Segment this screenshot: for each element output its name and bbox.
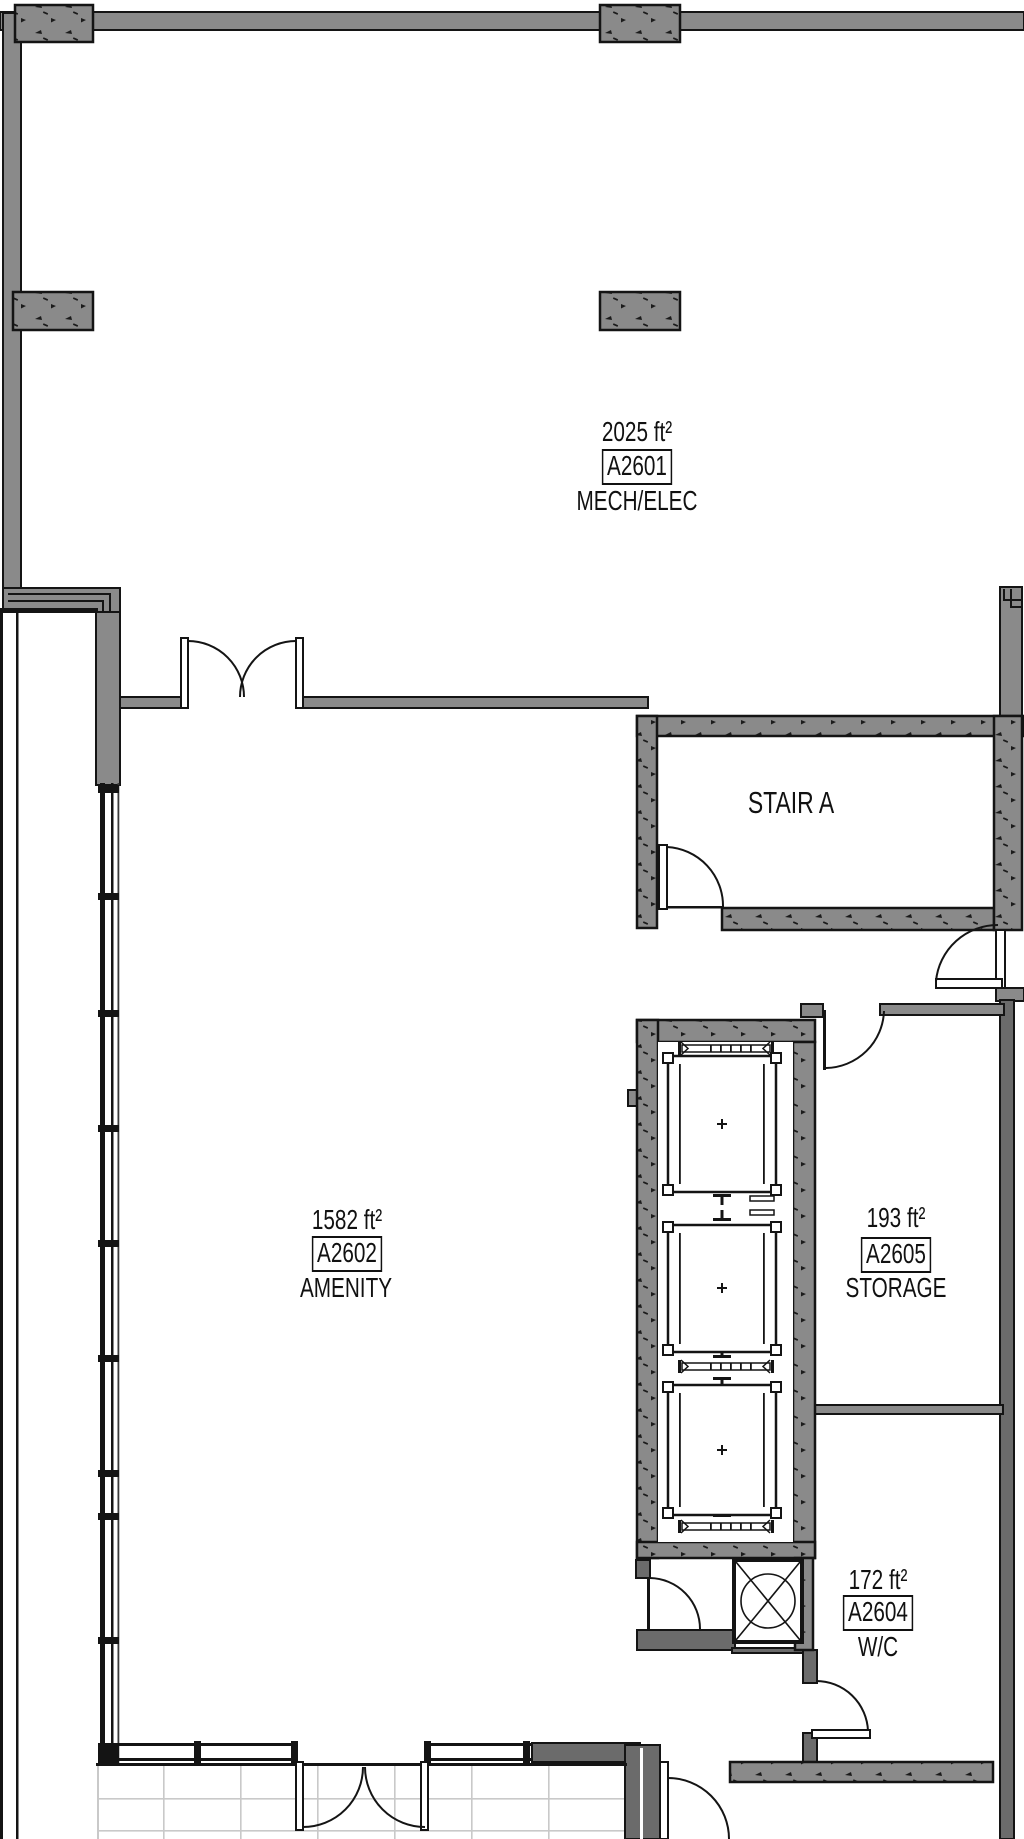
- stair-name-label: STAIR A: [748, 788, 834, 818]
- wc-door-leaf: [812, 1730, 870, 1738]
- column: [600, 292, 680, 330]
- stair-east-wall: [994, 716, 1022, 930]
- double-door-leaf-left: [181, 638, 188, 708]
- elevator-car-1: [663, 1053, 781, 1195]
- elevator-south-wall: [637, 1542, 815, 1558]
- vestibule-door-leaf: [647, 1577, 650, 1629]
- stair-west-wall: [637, 716, 657, 928]
- elevator-north-wall: [637, 1020, 815, 1042]
- mech-elec-name-label: MECH/ELEC: [577, 486, 698, 516]
- elevator-shaft: [628, 1020, 815, 1650]
- stair-door-swing: [667, 847, 723, 907]
- stair-north-wall: [637, 716, 1024, 736]
- wc-id-badge: A2604: [843, 1595, 913, 1631]
- elevator-car-3: [663, 1382, 781, 1518]
- amenity-north-wall: [302, 697, 648, 708]
- east-wall-lower: [1000, 1000, 1014, 1839]
- se-door-swing: [668, 1778, 729, 1839]
- wc-west-wall: [803, 1650, 817, 1683]
- column: [600, 5, 680, 42]
- amenity-id-badge: A2602: [312, 1236, 382, 1272]
- door-swing: [240, 641, 296, 697]
- wc-door: [812, 1681, 870, 1738]
- column: [13, 292, 93, 330]
- vent-shaft: [734, 1560, 802, 1642]
- mech-elec-area-label: 2025 ft²: [602, 417, 672, 447]
- storage-door-swing: [826, 1011, 884, 1068]
- amenity-north-wall-stub: [120, 697, 182, 708]
- storage-area-label: 193 ft²: [867, 1203, 926, 1233]
- stair-enclosure: [637, 716, 1024, 988]
- vestibule: [636, 1560, 700, 1629]
- west-glazing: [98, 783, 119, 1764]
- storage-door: [823, 1010, 884, 1070]
- mech-double-door: [181, 638, 303, 708]
- east-exit-door-swing: [936, 925, 998, 981]
- column: [15, 5, 93, 42]
- storage-id-badge: A2605: [861, 1237, 931, 1273]
- wc-area-label: 172 ft²: [849, 1565, 908, 1595]
- east-exit-door-leaf: [936, 979, 1002, 988]
- storage-south-wall: [813, 1405, 1003, 1414]
- amenity-south-wall: [532, 1743, 640, 1762]
- elevator-east-wall: [793, 1042, 815, 1558]
- terrace-double-door: [296, 1762, 428, 1830]
- terrace-door-leaf-left: [296, 1762, 303, 1830]
- door-swing: [303, 1767, 363, 1827]
- elevator-west-wall: [637, 1020, 658, 1558]
- stair-south-wall: [722, 908, 994, 930]
- vestibule-door-swing: [650, 1578, 700, 1629]
- west-wall-lower: [96, 612, 120, 785]
- wc-name-label: W/C: [858, 1632, 898, 1662]
- south-wall-east: [730, 1762, 993, 1782]
- north-wall: [0, 12, 1024, 30]
- stair-door-leaf: [659, 845, 667, 909]
- vestibule-south-wall: [637, 1630, 735, 1650]
- storage-door-stub: [801, 1004, 823, 1017]
- storage-north-wall: [880, 1004, 1004, 1015]
- amenity-area-label: 1582 ft²: [312, 1205, 382, 1235]
- storage-door-leaf: [823, 1010, 826, 1070]
- door-swing: [188, 641, 244, 697]
- amenity-name-label: AMENITY: [300, 1273, 392, 1303]
- south-walls: [660, 1762, 993, 1839]
- mech-elec-id-badge: A2601: [602, 449, 672, 485]
- floor-plan: 2025 ft² A2601 MECH/ELEC STAIR A 1582 ft…: [0, 0, 1024, 1839]
- terrace-door-leaf-right: [421, 1762, 428, 1830]
- se-door-jamb: [660, 1762, 668, 1839]
- storage-name-label: STORAGE: [846, 1273, 947, 1303]
- double-door-leaf-right: [296, 638, 303, 708]
- structural-columns: [13, 5, 680, 330]
- wc-door-swing: [816, 1681, 868, 1731]
- elevator-car-2: [663, 1222, 781, 1355]
- vestibule-jamb: [636, 1560, 650, 1578]
